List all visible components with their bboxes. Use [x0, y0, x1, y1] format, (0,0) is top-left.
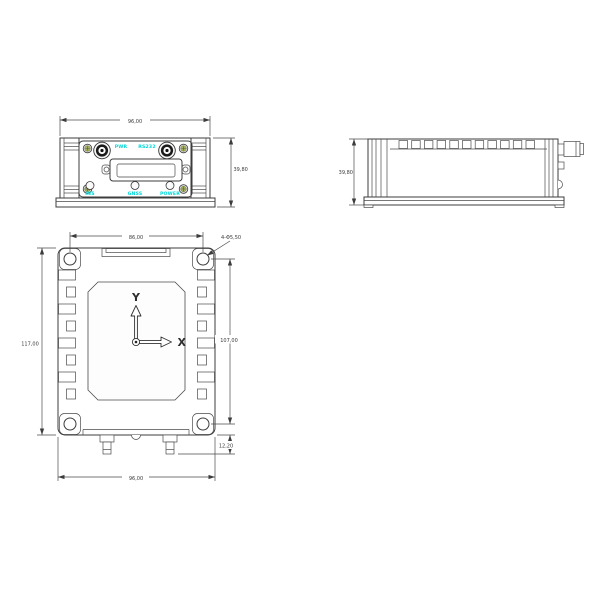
overall-width-dimension: 96,00 [58, 437, 215, 482]
screw-top-left [83, 144, 92, 153]
top-tnc-connector-right [163, 435, 177, 454]
mounting-hole-bottom-left [64, 418, 76, 430]
drawing-sheet: 96,00 [0, 0, 600, 600]
hole-spacing-y-text: 107,00 [220, 338, 238, 344]
mounting-hole-top-left [64, 253, 76, 265]
overall-height-dimension: 117,00 [21, 248, 56, 435]
hole-callout-text: 4-Φ5,50 [221, 235, 241, 241]
hole-callout: 4-Φ5,50 [207, 235, 241, 256]
label-gnss: GNSS [128, 191, 143, 197]
connector-offset-text: 12,20 [219, 444, 233, 450]
connector-offset-dimension: 12,20 [178, 435, 239, 454]
side-base-plate [364, 197, 564, 205]
overall-width-text: 96,00 [129, 476, 143, 482]
side-edge-tab [558, 162, 564, 169]
top-chassis [58, 248, 215, 454]
label-ins: INS [85, 191, 94, 197]
side-edge-boss [558, 180, 563, 189]
overall-height-text: 117,00 [21, 342, 39, 348]
side-height-dim-text: 39,80 [339, 170, 353, 176]
led-ins [86, 182, 94, 190]
y-axis-label: Y [131, 291, 141, 304]
tnc-connector-left [94, 142, 111, 159]
front-height-dimension: 39,80 [213, 138, 248, 207]
mounting-hole-bottom-right [197, 418, 209, 430]
side-height-dimension: 39,80 [339, 139, 368, 205]
side-chassis [364, 139, 584, 208]
x-axis-label: X [178, 336, 187, 349]
top-center-boss [132, 435, 141, 440]
side-view: 39,80 [339, 139, 584, 208]
front-view: 96,00 [56, 116, 248, 208]
front-width-dim-text: 96,00 [128, 119, 142, 125]
top-view: Y X 86,00 4-Φ5,50 117,00 [21, 232, 244, 483]
hole-spacing-x-text: 86,00 [129, 235, 143, 241]
top-tnc-connector-left [100, 435, 114, 454]
label-pwr: PWR [115, 144, 128, 150]
led-power [166, 182, 174, 190]
dsub-connector [102, 159, 190, 181]
front-width-dimension: 96,00 [60, 116, 210, 137]
label-rs232: RS232 [138, 144, 155, 150]
screw-top-right [179, 144, 188, 153]
front-base-plate [56, 198, 215, 207]
label-power: POWER [160, 191, 180, 197]
hole-spacing-y-dimension: 107,00 [211, 259, 244, 424]
front-left-bracket [60, 138, 79, 198]
technical-drawing: 96,00 [0, 0, 600, 600]
tnc-connector-right [159, 142, 176, 159]
screw-bottom-right [179, 185, 188, 194]
side-tnc-connector [558, 142, 584, 157]
front-right-bracket [191, 138, 210, 198]
mounting-hole-top-right [197, 253, 209, 265]
led-gnss [131, 182, 139, 190]
front-height-dim-text: 39,80 [234, 167, 248, 173]
led-indicators [86, 182, 174, 190]
